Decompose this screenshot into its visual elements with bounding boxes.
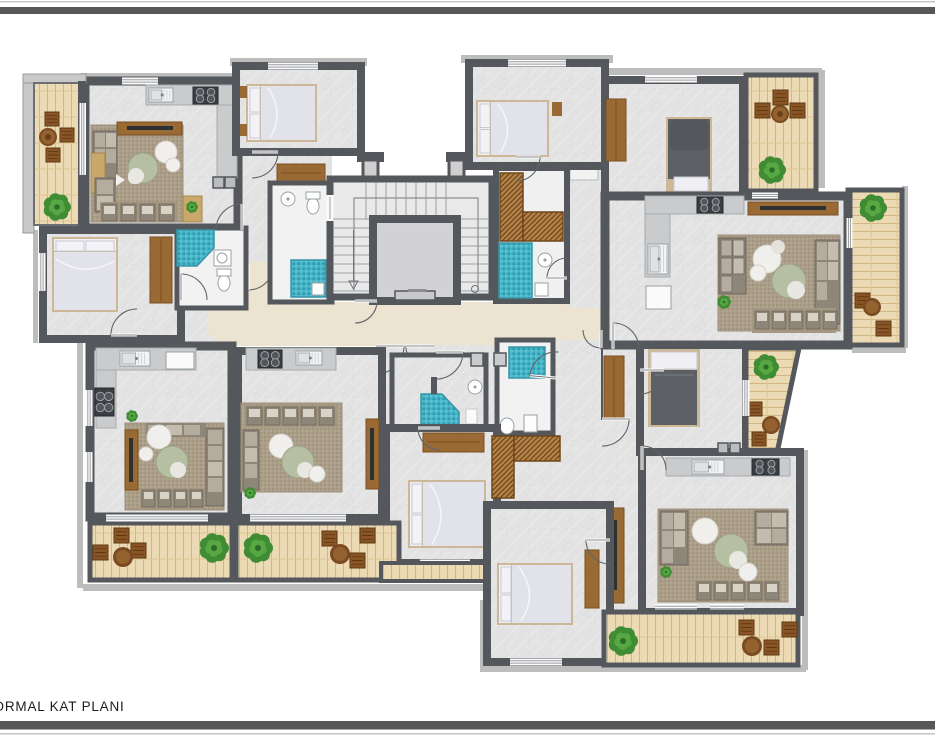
svg-text:NORMAL KAT PLANI: NORMAL KAT PLANI (0, 699, 125, 714)
